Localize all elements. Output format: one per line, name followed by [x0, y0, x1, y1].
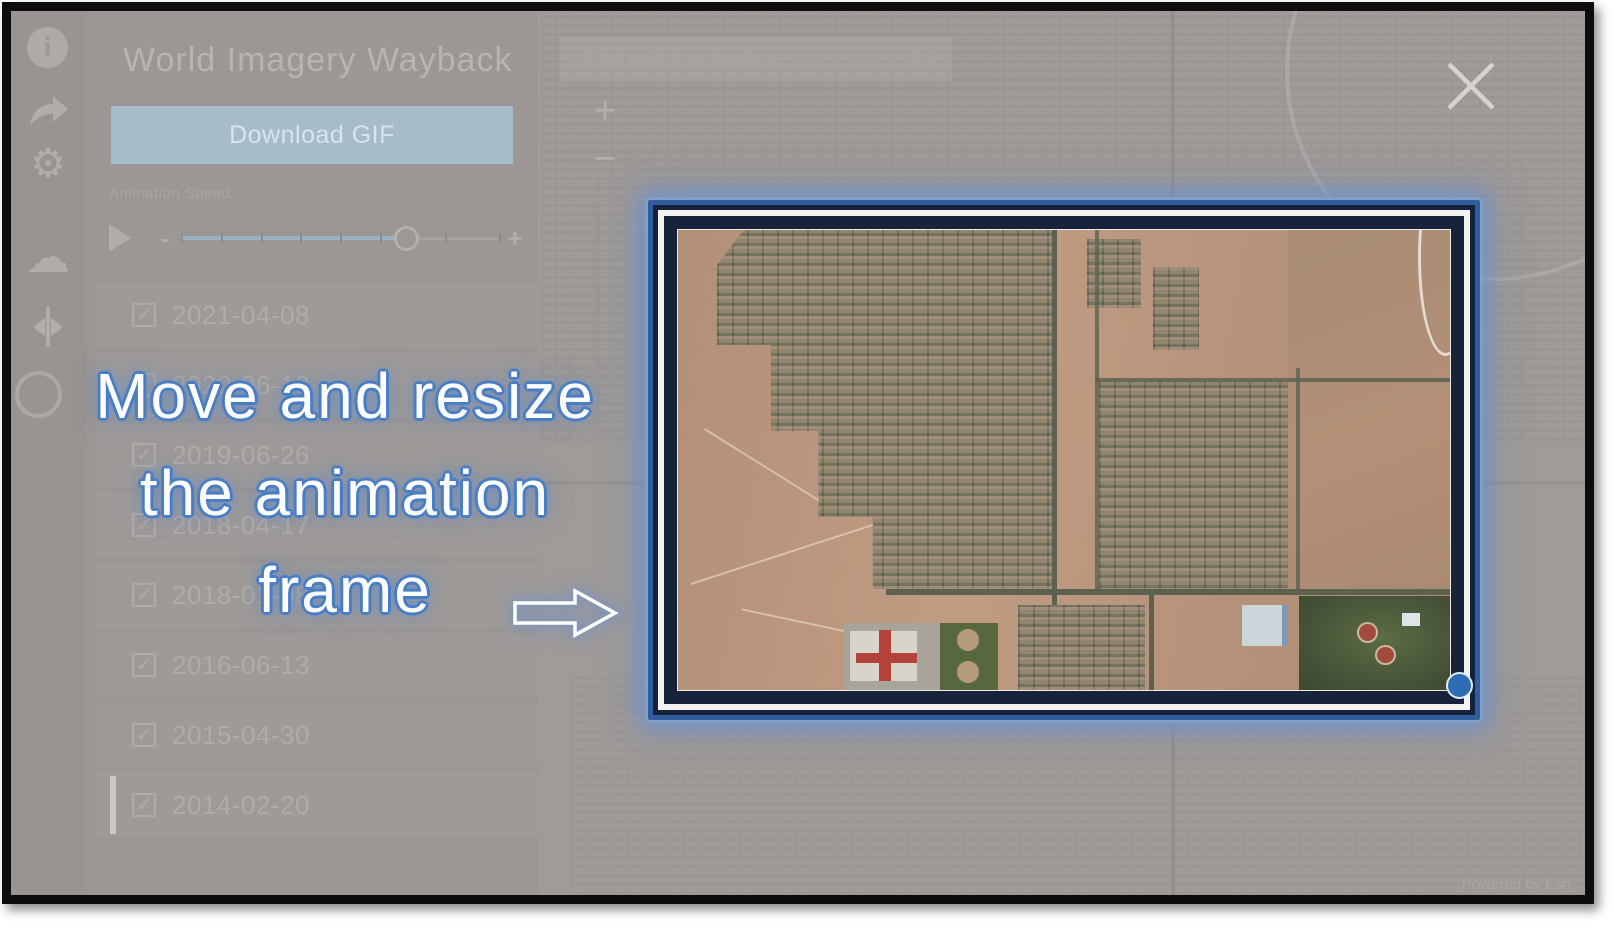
swipe-icon-right-arrow: [51, 318, 72, 336]
desert-track: [690, 521, 882, 585]
slider-tick: [445, 233, 447, 243]
active-version-indicator: [110, 776, 116, 834]
clubhouse-building: [1242, 605, 1288, 646]
suburb-block: [1099, 382, 1292, 591]
park-structure: [1357, 622, 1378, 643]
slider-track[interactable]: [181, 218, 499, 258]
curved-road: [1418, 229, 1451, 356]
slider-track-fill: [181, 236, 407, 240]
swipe-icon[interactable]: [24, 307, 72, 347]
desert-track: [705, 428, 837, 512]
park-structure: [1375, 645, 1396, 666]
map-attribution: Powered by Esri: [1462, 876, 1571, 893]
animation-speed-slider: - +: [109, 218, 525, 258]
tutorial-line-2: the animation: [19, 445, 671, 542]
version-row[interactable]: 2015-04-30: [96, 703, 538, 767]
play-icon[interactable]: [109, 224, 145, 252]
suburb-block: [1153, 267, 1199, 350]
download-gif-button[interactable]: Download GIF: [111, 106, 513, 164]
page-title: World Imagery Wayback: [123, 41, 512, 80]
version-checkbox[interactable]: [132, 793, 156, 817]
version-date: 2015-04-30: [172, 720, 310, 751]
app-window: i ⚙ ☁ World Imagery Wayback Download GIF…: [2, 2, 1594, 904]
slider-tick: [181, 233, 183, 243]
version-checkbox[interactable]: [132, 303, 156, 327]
slider-tick: [221, 233, 223, 243]
road: [1095, 230, 1099, 589]
school-complex: [844, 623, 941, 690]
speed-increase-button[interactable]: +: [505, 223, 525, 254]
slider-tick: [340, 233, 342, 243]
suburb-block: [1018, 605, 1145, 690]
resize-handle[interactable]: [1446, 672, 1473, 699]
zoom-in-button[interactable]: +: [584, 91, 626, 133]
version-row[interactable]: 2016-06-13: [96, 633, 538, 697]
cloud-layers-icon[interactable]: ☁: [23, 233, 73, 283]
version-date: 2014-02-20: [172, 790, 310, 821]
desert-area: [1288, 230, 1450, 589]
slider-handle[interactable]: [394, 226, 419, 251]
version-date: 2016-06-13: [172, 650, 310, 681]
version-row-active[interactable]: 2014-02-20: [96, 773, 538, 837]
share-icon[interactable]: [25, 91, 71, 131]
slider-tick: [499, 233, 501, 243]
ball-field: [957, 629, 979, 652]
close-icon[interactable]: [1439, 54, 1503, 118]
animation-frame[interactable]: [648, 200, 1480, 720]
tutorial-arrow-icon: [509, 581, 629, 645]
tutorial-line-1: Move and resize: [19, 348, 671, 445]
search-input[interactable]: [560, 37, 952, 81]
sports-fields: [940, 623, 998, 690]
zoom-out-button[interactable]: −: [584, 139, 626, 181]
animation-speed-label: Animation Speed: [109, 185, 231, 202]
suburb-block: [717, 230, 1057, 589]
road: [1149, 589, 1154, 690]
slider-tick: [300, 233, 302, 243]
slider-tick: [380, 233, 382, 243]
settings-gear-icon[interactable]: ⚙: [25, 141, 71, 187]
version-row[interactable]: 2021-04-08: [96, 283, 538, 347]
version-checkbox[interactable]: [132, 653, 156, 677]
satellite-imagery: [677, 229, 1451, 691]
swipe-icon-bar: [46, 307, 50, 347]
version-date: 2021-04-08: [172, 300, 310, 331]
info-icon[interactable]: i: [27, 27, 68, 68]
swipe-icon-left-arrow: [24, 318, 45, 336]
version-checkbox[interactable]: [132, 723, 156, 747]
golf-course: [1299, 596, 1450, 690]
school-red-roof: [879, 630, 892, 681]
search-box: [560, 37, 952, 81]
speed-decrease-button[interactable]: -: [155, 223, 175, 254]
road: [1095, 378, 1450, 382]
search-icon[interactable]: [914, 46, 940, 72]
road: [1296, 368, 1300, 589]
slider-tick: [261, 233, 263, 243]
ball-field: [957, 661, 979, 684]
road: [886, 589, 1450, 595]
park-building: [1402, 613, 1420, 626]
